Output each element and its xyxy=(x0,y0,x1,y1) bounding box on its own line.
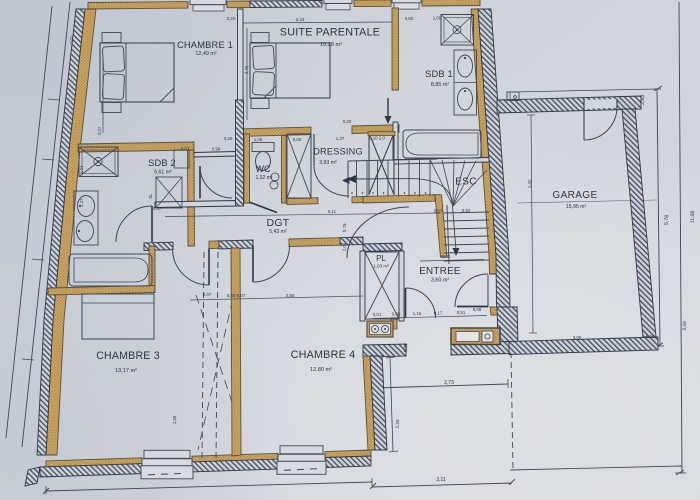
svg-text:0,07: 0,07 xyxy=(181,147,190,152)
svg-text:11,00: 11,00 xyxy=(690,210,696,223)
svg-text:1,06: 1,06 xyxy=(254,137,263,142)
svg-text:2,78: 2,78 xyxy=(244,65,249,74)
svg-text:0,60: 0,60 xyxy=(293,137,302,142)
svg-text:13,17 m²: 13,17 m² xyxy=(115,368,137,374)
svg-text:0,51: 0,51 xyxy=(457,310,466,315)
svg-text:0,01: 0,01 xyxy=(373,312,382,317)
svg-text:WC: WC xyxy=(256,164,271,174)
svg-text:3,60 m²: 3,60 m² xyxy=(431,278,449,284)
svg-text:2,59: 2,59 xyxy=(682,321,688,331)
svg-text:8,85 m²: 8,85 m² xyxy=(431,82,449,88)
svg-text:0,99: 0,99 xyxy=(212,147,221,152)
svg-text:SDB 1: SDB 1 xyxy=(425,69,453,79)
svg-text:GARAGE: GARAGE xyxy=(552,190,597,201)
svg-text:0,17: 0,17 xyxy=(434,311,443,316)
svg-text:9,22: 9,22 xyxy=(646,334,655,339)
svg-text:PL: PL xyxy=(376,254,386,263)
svg-text:5,78: 5,78 xyxy=(664,215,670,225)
svg-text:1,58: 1,58 xyxy=(172,415,177,424)
svg-text:0,79: 0,79 xyxy=(342,223,347,232)
svg-text:6,61 m²: 6,61 m² xyxy=(154,170,172,176)
svg-text:3,00: 3,00 xyxy=(573,335,582,340)
svg-text:CHAMBRE 4: CHAMBRE 4 xyxy=(291,349,356,361)
svg-text:ESC: ESC xyxy=(455,177,476,188)
svg-text:1,03 m²: 1,03 m² xyxy=(373,264,389,269)
svg-text:1,24: 1,24 xyxy=(79,165,84,174)
svg-text:10,28 m²: 10,28 m² xyxy=(320,42,342,48)
svg-text:15,95 m²: 15,95 m² xyxy=(566,204,587,210)
svg-text:3,11: 3,11 xyxy=(436,477,446,483)
svg-text:0,38: 0,38 xyxy=(403,343,408,352)
svg-text:0,60: 0,60 xyxy=(405,16,414,21)
svg-text:0,20: 0,20 xyxy=(343,119,352,124)
svg-text:0,10 2,0: 0,10 2,0 xyxy=(369,136,385,141)
svg-text:1,47: 1,47 xyxy=(79,198,84,207)
svg-text:CHAMBRE 1: CHAMBRE 1 xyxy=(177,40,233,50)
svg-text:0,07: 0,07 xyxy=(203,292,212,297)
svg-text:0,60 0,07: 0,60 0,07 xyxy=(227,293,246,298)
svg-text:5,43 m²: 5,43 m² xyxy=(269,229,287,235)
svg-text:12,49 m²: 12,49 m² xyxy=(195,51,216,57)
svg-text:SUITE PARENTALE: SUITE PARENTALE xyxy=(280,27,380,39)
svg-text:1,68: 1,68 xyxy=(433,16,442,21)
svg-text:0,20: 0,20 xyxy=(227,16,236,21)
svg-text:0,92: 0,92 xyxy=(462,208,471,213)
svg-text:1,32 m²: 1,32 m² xyxy=(256,175,273,181)
svg-text:SDB 2: SDB 2 xyxy=(148,158,176,168)
svg-text:1,37: 1,37 xyxy=(336,136,345,141)
svg-text:DRESSING: DRESSING xyxy=(313,147,363,157)
svg-text:6,11: 6,11 xyxy=(328,209,337,214)
svg-text:2,07: 2,07 xyxy=(97,126,102,135)
svg-text:2,02: 2,02 xyxy=(442,254,451,259)
svg-text:0,20: 0,20 xyxy=(224,136,233,141)
svg-text:3,93 m²: 3,93 m² xyxy=(319,160,337,166)
svg-text:1,15: 1,15 xyxy=(413,311,422,316)
svg-text:6,06: 6,06 xyxy=(473,307,482,312)
svg-text:CHAMBRE 3: CHAMBRE 3 xyxy=(96,350,160,362)
svg-text:0,05: 0,05 xyxy=(392,312,401,317)
svg-text:2,43: 2,43 xyxy=(296,17,305,22)
svg-text:2,73: 2,73 xyxy=(444,380,454,386)
svg-text:2,50: 2,50 xyxy=(286,293,295,298)
svg-text:ENTREE: ENTREE xyxy=(419,266,461,277)
svg-text:0,07: 0,07 xyxy=(153,206,162,211)
svg-text:12,80 m²: 12,80 m² xyxy=(310,367,332,373)
svg-text:2,59: 2,59 xyxy=(395,419,400,429)
svg-text:2,04: 2,04 xyxy=(342,242,347,251)
svg-text:DGT: DGT xyxy=(266,217,289,229)
svg-text:SL: SL xyxy=(148,193,153,199)
